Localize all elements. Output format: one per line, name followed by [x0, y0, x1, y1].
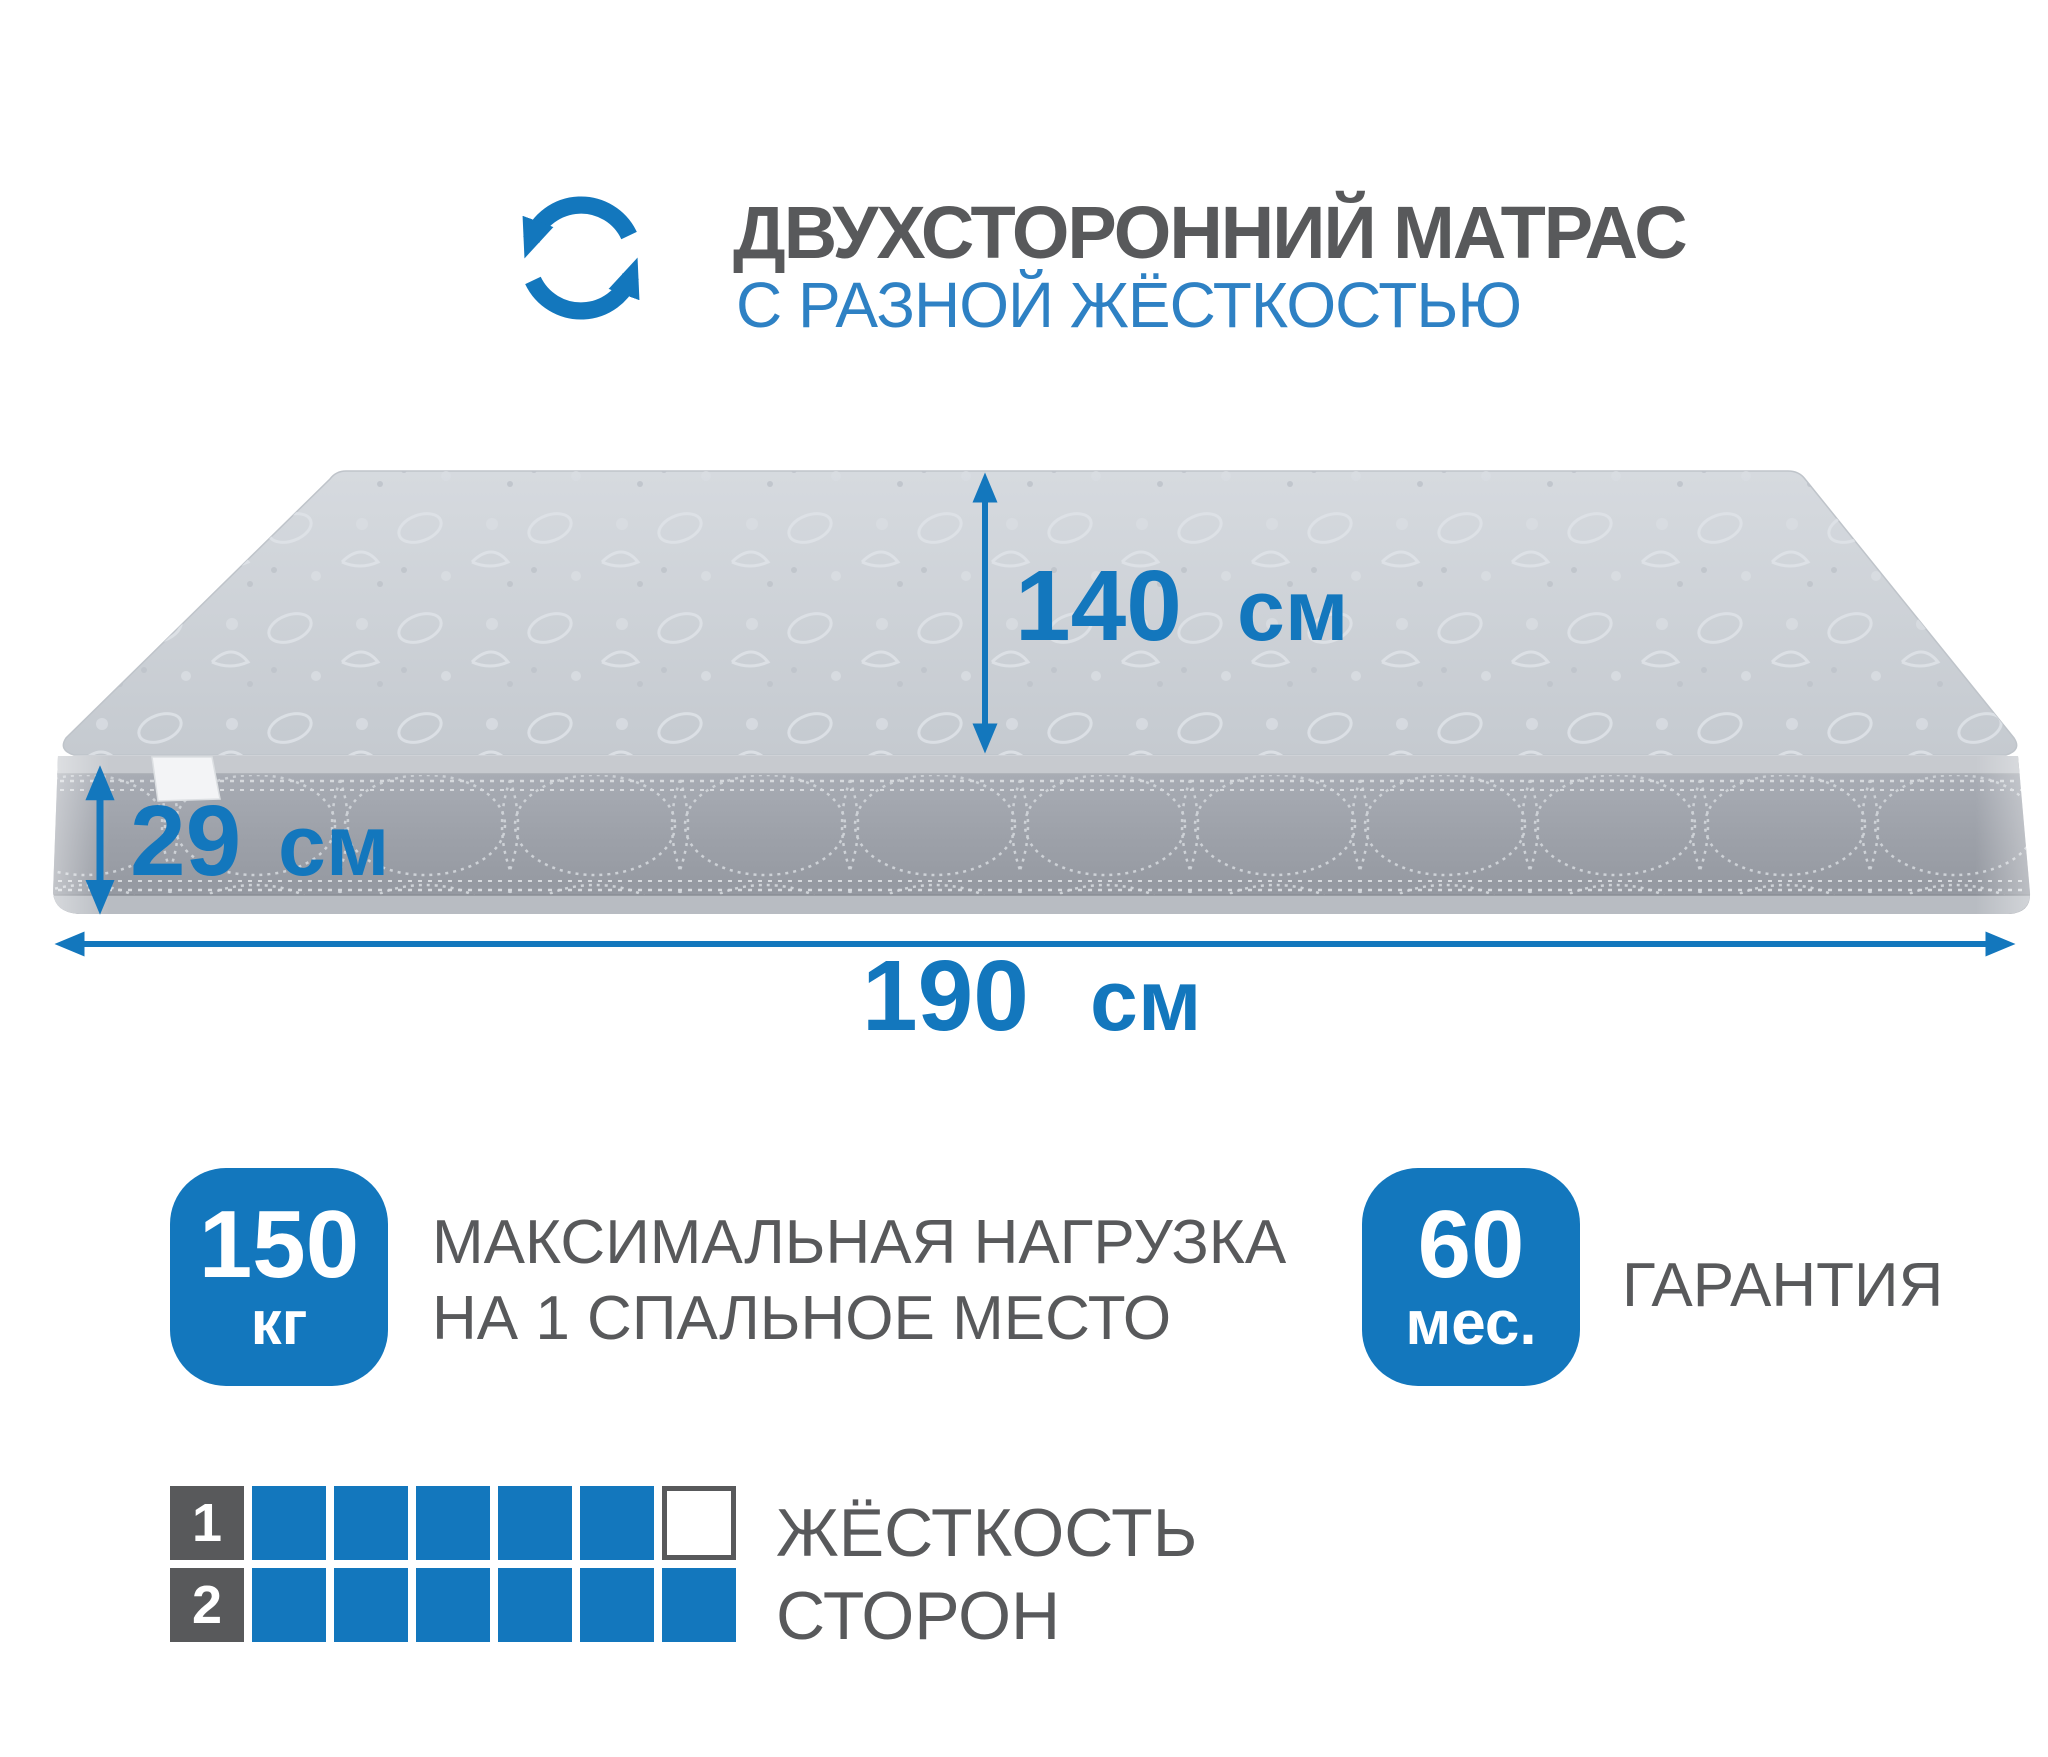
- firmness-cell-filled: [416, 1486, 490, 1560]
- max-load-badge: 150 кг: [170, 1168, 388, 1386]
- firmness-cell-filled: [334, 1568, 408, 1642]
- max-load-label: МАКСИМАЛЬНАЯ НАГРУЗКА НА 1 СПАЛЬНОЕ МЕСТ…: [432, 1205, 1286, 1357]
- warranty-unit: мес.: [1405, 1293, 1536, 1355]
- firmness-cell-filled: [580, 1568, 654, 1642]
- firmness-cell-filled: [252, 1486, 326, 1560]
- firmness-row: 1: [170, 1486, 736, 1560]
- side-number: 1: [170, 1486, 244, 1560]
- side-number: 2: [170, 1568, 244, 1642]
- max-load-value: 150: [199, 1199, 359, 1290]
- infographic-canvas: ДВУХСТОРОННИЙ МАТРАС С РАЗНОЙ ЖЁСТКОСТЬЮ: [0, 0, 2048, 1757]
- firmness-cell-filled: [252, 1568, 326, 1642]
- firmness-cell-filled: [498, 1568, 572, 1642]
- firmness-label-line1: ЖЁСТКОСТЬ: [776, 1492, 1197, 1575]
- max-load-label-line1: МАКСИМАЛЬНАЯ НАГРУЗКА: [432, 1205, 1286, 1281]
- dimension-length-value: 140: [1015, 550, 1182, 662]
- max-load-label-line2: НА 1 СПАЛЬНОЕ МЕСТО: [432, 1281, 1286, 1357]
- warranty-value: 60: [1418, 1199, 1525, 1290]
- firmness-cell-filled: [334, 1486, 408, 1560]
- firmness-row: 2: [170, 1568, 736, 1642]
- warranty-badge: 60 мес.: [1362, 1168, 1580, 1386]
- firmness-grid: 12: [170, 1486, 736, 1642]
- max-load-unit: кг: [251, 1293, 308, 1355]
- dimension-height-unit: см: [278, 798, 389, 894]
- firmness-cell-filled: [580, 1486, 654, 1560]
- firmness-label: ЖЁСТКОСТЬ СТОРОН: [776, 1492, 1197, 1658]
- firmness-cell-empty: [662, 1486, 736, 1560]
- firmness-cell-filled: [416, 1568, 490, 1642]
- dimension-height-value: 29: [130, 785, 241, 897]
- firmness-label-line2: СТОРОН: [776, 1575, 1197, 1658]
- dimension-width-value: 190: [862, 940, 1029, 1052]
- mattress-illustration: 140 см 29 см 190 см: [0, 0, 2048, 1100]
- firmness-cell-filled: [498, 1486, 572, 1560]
- dimension-width-unit: см: [1090, 953, 1201, 1049]
- firmness-cell-filled: [662, 1568, 736, 1642]
- dimension-length-unit: см: [1237, 563, 1348, 659]
- warranty-label: ГАРАНТИЯ: [1622, 1248, 1943, 1324]
